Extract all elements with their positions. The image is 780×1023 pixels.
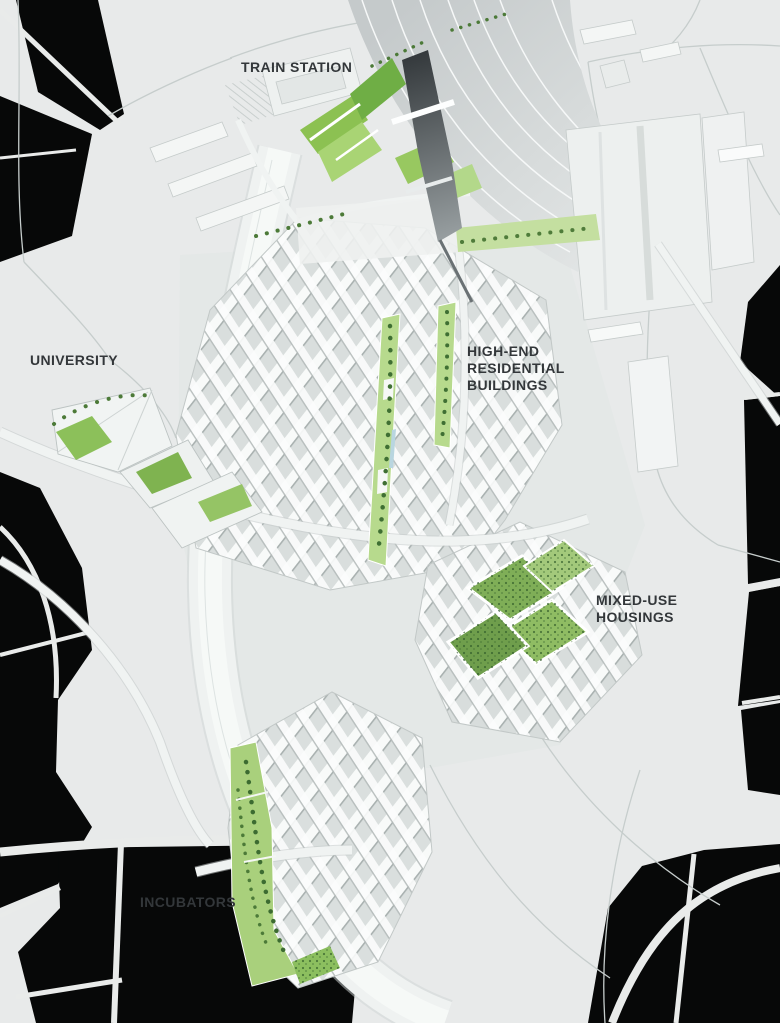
masterplan-svg <box>0 0 780 1023</box>
label-incubators: INCUBATORS <box>140 894 236 911</box>
label-high-end-residential: HIGH-END RESIDENTIAL BUILDINGS <box>467 343 565 394</box>
label-university: UNIVERSITY <box>30 352 118 369</box>
label-train-station: TRAIN STATION <box>241 59 352 76</box>
masterplan-rendering: TRAIN STATION UNIVERSITY HIGH-END RESIDE… <box>0 0 780 1023</box>
label-mixed-use-housings: MIXED-USE HOUSINGS <box>596 592 677 626</box>
